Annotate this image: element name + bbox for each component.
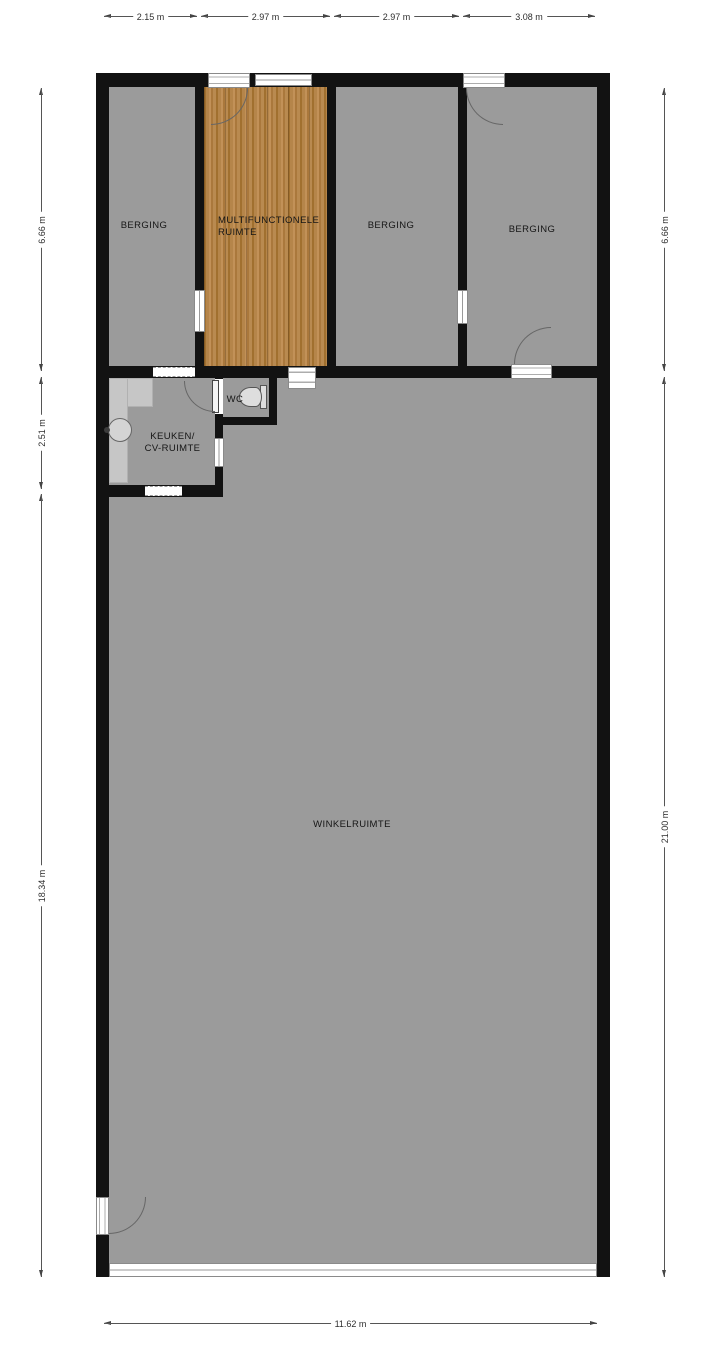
passage-keuken-winkelruimte — [145, 486, 182, 496]
room-label-multifunctionele-ruimte: MULTIFUNCTIONELE RUIMTE — [218, 215, 323, 239]
dimension-value: 21.00 m — [658, 807, 672, 848]
dimension-right-2: 21.00 m — [660, 377, 670, 1277]
wall-exterior-top — [96, 73, 610, 87]
room-label-line: CV-RUIMTE — [130, 443, 215, 455]
wall-mfr-berging2 — [327, 87, 336, 366]
dimension-value: 3.08 m — [511, 12, 547, 22]
window-keuken-winkelruimte — [214, 438, 224, 467]
room-label-line: KEUKEN/ — [130, 431, 215, 443]
opening-berging1-mfr — [194, 290, 205, 332]
wall-berging2-berging3 — [458, 87, 467, 366]
entry-door-left-wall — [96, 1197, 109, 1235]
room-label-line: MULTIFUNCTIONELE — [218, 215, 323, 227]
room-label-berging-2: BERGING — [346, 220, 436, 232]
door-berging3-winkelruimte — [511, 364, 552, 379]
dimension-top-4: 3.08 m — [463, 12, 595, 22]
dimension-value: 2.51 m — [35, 415, 49, 451]
floor-plan-canvas: BERGING MULTIFUNCTIONELE RUIMTE BERGING … — [0, 0, 716, 1354]
dimension-value: 2.15 m — [133, 12, 169, 22]
opening-berging2-berging3 — [457, 290, 468, 324]
room-label-line: RUIMTE — [218, 227, 323, 239]
room-label-berging-3: BERGING — [487, 224, 577, 236]
dimension-bottom-1: 11.62 m — [104, 1319, 597, 1329]
room-label-keuken: KEUKEN/ CV-RUIMTE — [130, 431, 215, 455]
sink-icon — [108, 418, 132, 442]
room-label-winkelruimte: WINKELRUIMTE — [292, 819, 412, 831]
dimension-top-1: 2.15 m — [104, 12, 197, 22]
entrance-door-mfr-top — [208, 73, 250, 88]
dimension-value: 11.62 m — [331, 1319, 371, 1329]
dimension-value: 6.66 m — [35, 212, 49, 248]
window-mfr-top — [255, 74, 312, 86]
passage-berging1-keuken — [153, 367, 195, 377]
dimension-right-1: 6.66 m — [660, 88, 670, 371]
dimension-left-1: 6.66 m — [37, 88, 47, 371]
dimension-value: 2.97 m — [248, 12, 284, 22]
faucet-icon — [104, 427, 110, 433]
dimension-top-3: 2.97 m — [334, 12, 459, 22]
dimension-value: 18.34 m — [35, 865, 49, 906]
room-label-wc: WC — [222, 394, 248, 406]
entrance-door-berging3-top — [463, 73, 505, 88]
dimension-top-2: 2.97 m — [201, 12, 330, 22]
dimension-value: 6.66 m — [658, 212, 672, 248]
wall-wc-bottom — [215, 417, 277, 425]
wall-wc-right — [269, 378, 277, 425]
dimension-left-3: 18.34 m — [37, 494, 47, 1277]
wall-exterior-right — [597, 73, 610, 1277]
door-mfr-winkelruimte — [288, 367, 316, 389]
room-label-berging-1: BERGING — [99, 220, 189, 232]
wall-exterior-left — [96, 73, 109, 1277]
storefront-window-bottom — [109, 1263, 597, 1277]
dimension-value: 2.97 m — [379, 12, 415, 22]
dimension-left-2: 2.51 m — [37, 377, 47, 489]
